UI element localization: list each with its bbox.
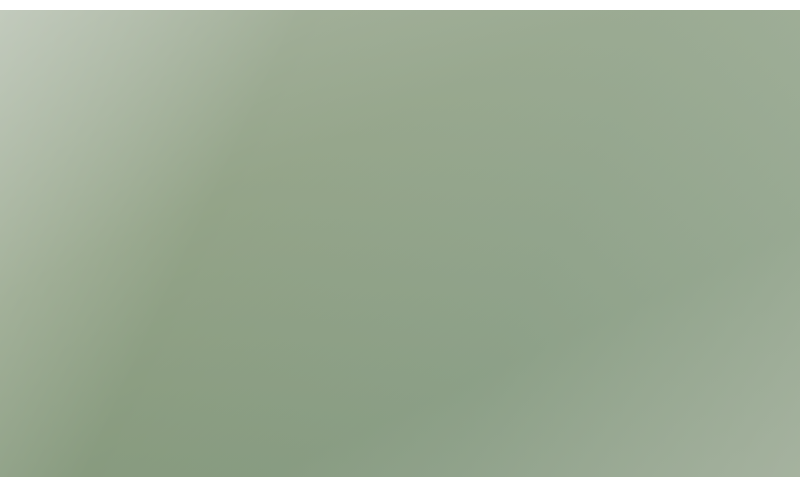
rendered-scene — [0, 0, 800, 485]
aerial-rendering — [0, 0, 800, 485]
white-frame-top — [0, 0, 800, 10]
white-frame-bottom — [0, 477, 800, 485]
